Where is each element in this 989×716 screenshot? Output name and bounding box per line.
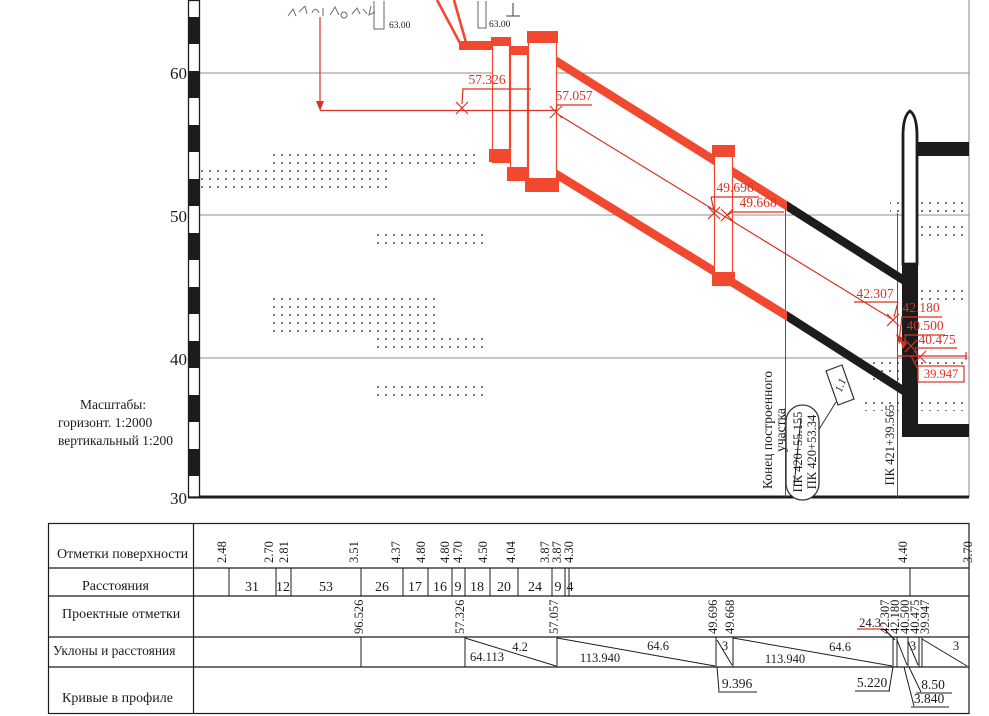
svg-text:4: 4 [567, 580, 574, 595]
svg-text:31: 31 [245, 580, 259, 595]
elevation-scale-bar [189, 1, 200, 498]
svg-text:4.70: 4.70 [451, 541, 465, 563]
distance-values: 31 12 53 26 17 16 9 18 20 24 9 4 [245, 580, 574, 595]
svg-text:53: 53 [319, 580, 333, 595]
svg-text:8.50: 8.50 [921, 677, 945, 692]
mark-49668: 49.668 [739, 195, 776, 210]
svg-text:3.51: 3.51 [347, 541, 361, 563]
design-note: 24.3 [859, 616, 881, 630]
svg-text:64.113: 64.113 [470, 650, 504, 664]
svg-text:64.6: 64.6 [647, 639, 669, 653]
drawing-sheet: 60 50 40 30 Масштабы: горизонт. 1:2000 в… [0, 0, 989, 716]
existing-structure [902, 111, 969, 437]
axis-tick-40: 40 [170, 350, 187, 369]
svg-text:96.526: 96.526 [352, 600, 366, 634]
row-label-distances: Расстояния [82, 579, 150, 594]
scales-horizontal: горизонт. 1:2000 [58, 415, 153, 430]
bench-label-2: 63.00 [489, 20, 511, 30]
svg-text:16: 16 [433, 580, 447, 595]
svg-text:49.696: 49.696 [706, 600, 720, 634]
svg-text:3: 3 [722, 639, 728, 653]
svg-text:113.940: 113.940 [580, 651, 620, 665]
svg-text:3: 3 [910, 639, 916, 653]
svg-text:3.840: 3.840 [914, 691, 945, 706]
bench-label-1: 63.00 [389, 21, 411, 31]
svg-text:4.04: 4.04 [504, 540, 518, 563]
svg-text:9: 9 [455, 580, 462, 595]
svg-text:113.940: 113.940 [765, 652, 805, 666]
svg-text:17: 17 [408, 580, 422, 595]
pk-station: ПК 421+39.565 [883, 405, 897, 486]
svg-text:4.30: 4.30 [562, 541, 576, 563]
svg-text:2.48: 2.48 [215, 541, 229, 563]
mark-57057: 57.057 [555, 88, 592, 103]
axis-tick-60: 60 [170, 64, 187, 83]
svg-text:4.80: 4.80 [438, 541, 452, 563]
scales-title: Масштабы: [80, 397, 146, 412]
svg-text:9: 9 [555, 580, 562, 595]
svg-text:26: 26 [375, 580, 389, 595]
mark-40475: 40.475 [918, 332, 955, 347]
svg-text:57.057: 57.057 [547, 600, 561, 634]
svg-text:4.80: 4.80 [414, 541, 428, 563]
svg-text:4.50: 4.50 [476, 541, 490, 563]
curve-values: 9.396 5.220 8.50 3.840 [722, 675, 945, 706]
svg-text:3.70: 3.70 [961, 541, 975, 563]
svg-text:18: 18 [470, 580, 484, 595]
row-label-slopes: Уклоны и расстояния [53, 643, 176, 658]
mark-39947: 39.947 [924, 367, 958, 381]
axis-tick-30: 30 [170, 489, 187, 508]
svg-text:3: 3 [953, 639, 959, 653]
axis-tick-50: 50 [170, 207, 187, 226]
vegetation-symbols [288, 6, 375, 18]
mark-40500: 40.500 [906, 318, 943, 333]
svg-text:4.37: 4.37 [389, 541, 403, 563]
svg-text:9.396: 9.396 [722, 676, 753, 691]
benchmark-bracket-1 [374, 1, 384, 29]
svg-text:20: 20 [497, 580, 511, 595]
row-label-curves: Кривые в профиле [62, 691, 173, 706]
svg-text:24: 24 [528, 580, 542, 595]
svg-text:4.2: 4.2 [512, 640, 528, 654]
mark-57326: 57.326 [468, 72, 505, 87]
surface-marks: 2.48 2.70 2.81 3.51 4.37 4.80 4.80 4.70 … [215, 540, 975, 563]
svg-text:64.6: 64.6 [829, 640, 851, 654]
scales-vertical: вертикальный 1:200 [58, 433, 173, 448]
row-label-design: Проектные отметки [62, 607, 181, 622]
svg-text:2.81: 2.81 [277, 541, 291, 563]
svg-text:4.40: 4.40 [896, 541, 910, 563]
svg-text:49.668: 49.668 [723, 600, 737, 634]
benchmark-bracket-2 [478, 1, 486, 28]
mark-42180: 42.180 [902, 300, 939, 315]
svg-text:39.947: 39.947 [918, 600, 932, 634]
row-label-surface: Отметки поверхности [57, 547, 189, 562]
ground-tee-symbol [506, 3, 520, 16]
end-of-section-line2: участка [773, 408, 788, 452]
mark-49696: 49.696 [716, 180, 753, 195]
svg-text:12: 12 [276, 580, 290, 595]
svg-text:5.220: 5.220 [857, 675, 888, 690]
svg-text:2.70: 2.70 [262, 541, 276, 563]
profile-drawing: 60 50 40 30 Масштабы: горизонт. 1:2000 в… [0, 0, 989, 716]
design-marks: 96.526 57.326 57.057 49.696 49.668 42.30… [352, 600, 932, 634]
pk-new: ПК 420+53.34 [805, 414, 819, 489]
svg-text:57.326: 57.326 [453, 600, 467, 634]
mark-42307: 42.307 [856, 286, 893, 301]
